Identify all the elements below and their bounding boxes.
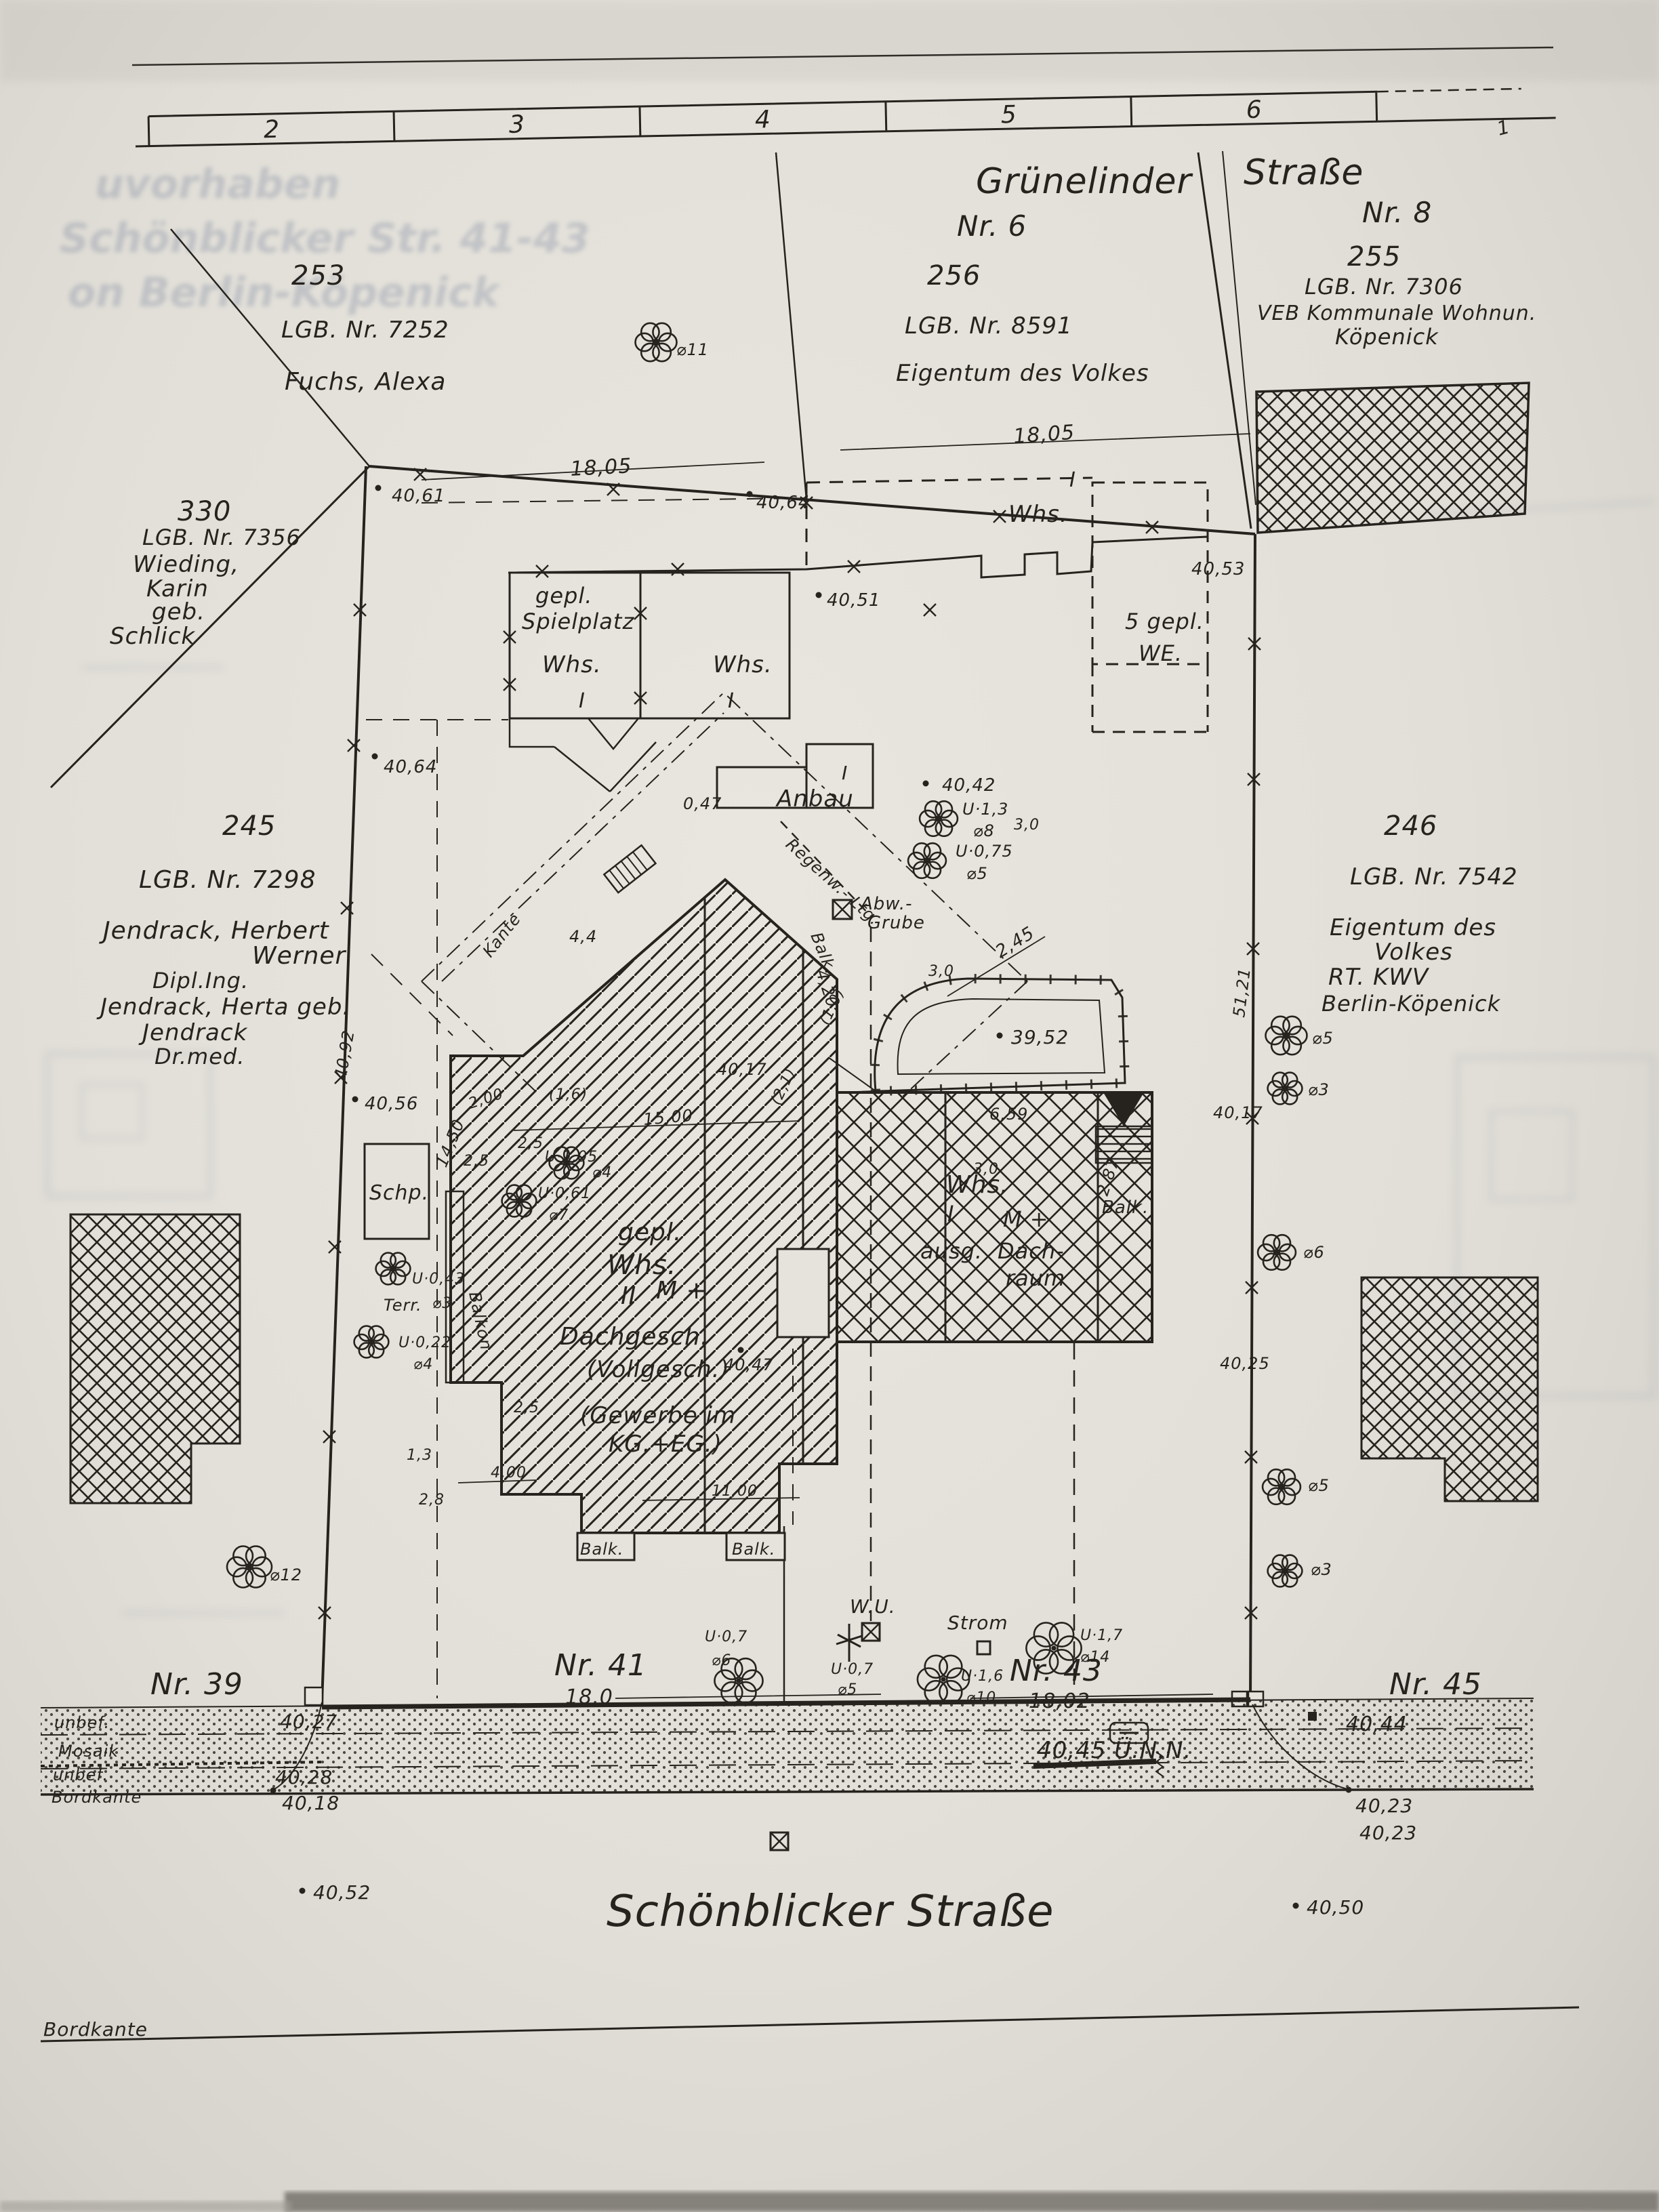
map-label: gepl. — [618, 1218, 682, 1246]
map-label: 5 gepl. — [1125, 609, 1204, 634]
map-label: U·0,7 — [831, 1661, 874, 1678]
boundary-tick — [924, 604, 936, 616]
map-label: I — [579, 689, 586, 713]
survey-point — [1346, 1787, 1352, 1793]
map-label: Mosaik — [58, 1742, 119, 1761]
inner-courtyard — [777, 1249, 829, 1337]
map-label: LGB. Nr. 7298 — [139, 866, 316, 894]
stairs-icon — [604, 845, 655, 893]
boundary-tick — [323, 1431, 335, 1443]
map-label: (Vollgesch.) — [587, 1356, 730, 1383]
map-label: 330 — [178, 496, 231, 527]
map-label: ⌀3 — [1311, 1560, 1332, 1579]
map-label: 40,64 — [384, 757, 437, 777]
site-plan-drawing: uvorhabenSchönblicker Str. 41-43on Berli… — [0, 0, 1659, 2212]
map-label: 255 — [1347, 241, 1401, 272]
map-label: ⌀4 — [413, 1356, 433, 1373]
map-label: Anbau — [775, 785, 854, 813]
map-label: Whs. — [1008, 501, 1068, 528]
map-label: ⌀5 — [1308, 1476, 1330, 1495]
boundary-west — [322, 466, 366, 1702]
map-label: Köpenick — [1335, 324, 1439, 350]
neighbor-building-east — [1361, 1277, 1538, 1501]
map-label: Eigentum des Volkes — [896, 360, 1149, 387]
map-label: KG.+EG.) — [609, 1431, 722, 1458]
map-label: Balk. — [580, 1540, 623, 1559]
ghost-bleed-text: uvorhabenSchönblicker Str. 41-43on Berli… — [60, 161, 590, 316]
map-label: LGB. Nr. 7252 — [281, 316, 449, 344]
sidewalk-band — [41, 1698, 1534, 1795]
map-label: (1,6) — [549, 1086, 588, 1103]
map-label: 40,61 — [392, 486, 445, 506]
map-label: Kante — [479, 909, 525, 961]
map-label: 18,0 — [565, 1685, 613, 1709]
map-label: Nr. 43 — [1010, 1654, 1103, 1688]
map-label: LGB. Nr. 7356 — [142, 525, 301, 550]
map-label: LGB. Nr. 7542 — [1350, 863, 1518, 890]
map-label: I — [842, 762, 848, 784]
survey-point — [923, 781, 929, 787]
map-label: Berlin-Köpenick — [1322, 991, 1501, 1017]
map-label: 4,4 — [569, 927, 597, 946]
map-label: Balk. — [732, 1540, 775, 1559]
map-label: 3,0 — [1014, 817, 1040, 834]
ruler-number: 6 — [1246, 96, 1262, 124]
map-label: 40,23 — [1359, 1822, 1417, 1844]
map-label: 40,17 — [1213, 1103, 1263, 1122]
map-label: U·0,43 — [412, 1271, 465, 1288]
map-label: geb. — [152, 598, 205, 626]
map-label: 40,56 — [365, 1094, 418, 1114]
survey-point — [738, 1347, 744, 1353]
map-label: 1,3 — [407, 1447, 432, 1464]
scale-ruler: 23456 — [135, 88, 1555, 146]
tree-icon — [1263, 1469, 1300, 1504]
map-label: ⌀6 — [1303, 1243, 1325, 1262]
map-label: 40,27 — [280, 1711, 337, 1733]
map-label: 51,21 — [1229, 966, 1254, 1019]
map-label: 40,47 — [724, 1355, 774, 1374]
map-label: 40,92 — [331, 1029, 358, 1081]
map-label: 40,28 — [275, 1766, 333, 1788]
map-label: ⌀12 — [270, 1565, 302, 1584]
map-label: U·0,22 — [398, 1334, 451, 1351]
ruler-number: 2 — [264, 116, 280, 144]
map-label: 11,00 — [712, 1483, 758, 1500]
map-label: U·1,7 — [1080, 1627, 1123, 1644]
map-label: ausg. — [920, 1238, 983, 1264]
map-label: 2,5 — [514, 1399, 539, 1416]
map-label: M + — [1003, 1206, 1049, 1232]
map-label: 18,05 — [570, 454, 633, 481]
pole-icon — [836, 1624, 862, 1662]
survey-point — [747, 491, 753, 497]
map-label: raum — [1006, 1265, 1065, 1291]
ruler-number: 5 — [1000, 101, 1017, 129]
ghost-text: uvorhaben — [95, 161, 340, 208]
tree-icon — [376, 1253, 411, 1285]
tree-icon — [636, 323, 677, 361]
map-label: (Gewerbe im — [580, 1402, 736, 1429]
map-label: Nr. 45 — [1389, 1667, 1482, 1702]
survey-point — [997, 1033, 1003, 1039]
map-label: ⌀5 — [966, 864, 988, 883]
tree-icon — [920, 801, 958, 836]
tree-icon — [1268, 1073, 1303, 1105]
map-label: Nr. 8 — [1362, 196, 1432, 229]
map-label: ⌀11 — [676, 340, 709, 359]
map-label: Schönblicker Straße — [607, 1887, 1054, 1937]
street-edge-gruenelinder-2 — [1223, 151, 1256, 505]
tree-icon — [354, 1326, 389, 1358]
map-label: VEB Kommunale Wohnun. — [1257, 302, 1536, 325]
map-label: U·1,3 — [962, 800, 1008, 819]
tree-icon — [1268, 1555, 1303, 1587]
map-label: 2,45 — [992, 923, 1038, 962]
buildings — [70, 383, 1538, 1560]
map-label: 40,51 — [827, 590, 880, 611]
map-label: unbef. — [53, 1765, 108, 1784]
ghost-text: Schönblicker Str. 41-43 — [60, 215, 590, 262]
map-label: 40,18 — [282, 1792, 340, 1814]
map-label: Straße — [1244, 152, 1364, 193]
arched-structure — [828, 979, 1125, 1092]
planned-5-we — [1092, 483, 1208, 732]
survey-point — [375, 485, 382, 491]
strom-box-icon — [977, 1641, 990, 1654]
map-label: 40,64 — [756, 493, 810, 513]
map-label: 4,00 — [491, 1465, 527, 1481]
map-label: Nr. 6 — [957, 209, 1027, 243]
map-label: 40,53 — [1191, 559, 1245, 579]
map-label: 40,17 — [717, 1060, 767, 1079]
map-label: Bordkante — [52, 1788, 142, 1807]
map-label: ⌀6 — [712, 1652, 731, 1669]
street-edge-gruenelinder — [1198, 152, 1251, 529]
map-label: ⌀10 — [966, 1689, 996, 1706]
tree-icon — [1266, 1017, 1307, 1054]
map-label: Dr.med. — [155, 1044, 245, 1069]
map-label: U·0,61 — [538, 1185, 591, 1202]
map-label: Eigentum des — [1330, 914, 1496, 941]
corner-block-northeast — [1256, 383, 1529, 533]
map-label: Spielplatz — [522, 609, 634, 634]
survey-point — [352, 1097, 359, 1103]
map-label: ⌀5 — [1312, 1029, 1334, 1048]
map-label: Werner — [252, 942, 347, 970]
map-label: Wieding, — [133, 551, 239, 578]
map-label: Grünelinder — [976, 161, 1193, 202]
boundary-tick — [348, 739, 360, 752]
map-label: Dachgesch. — [560, 1323, 709, 1351]
map-label: Jendrack, Herta geb. — [96, 994, 350, 1021]
ghost-text: on Berlin-Köpenick — [68, 269, 501, 316]
map-label: Schlick — [110, 623, 195, 650]
survey-point — [1293, 1903, 1299, 1909]
map-label: gepl. — [535, 583, 592, 609]
map-label: ⌀5 — [838, 1681, 857, 1698]
map-label: 40,42 — [942, 775, 996, 796]
map-label: I — [947, 1201, 954, 1227]
map-label: 3,0 — [928, 963, 954, 980]
map-label: ⌀3 — [1308, 1080, 1330, 1099]
wu-manhole-icon — [862, 1623, 880, 1641]
map-label: Terr. — [384, 1296, 422, 1315]
manhole-icon-street — [771, 1832, 788, 1850]
map-label: Whs. — [542, 651, 602, 678]
map-label: Nr. 41 — [554, 1648, 647, 1683]
map-label: 2,5 — [518, 1135, 544, 1152]
map-label: 253 — [291, 260, 345, 291]
map-label: Nr. 39 — [150, 1667, 243, 1702]
boundary-tick — [994, 510, 1006, 523]
tree-icon — [908, 843, 946, 878]
map-label: 40,52 — [313, 1881, 371, 1904]
map-label: U·0,75 — [956, 842, 1013, 861]
survey-point — [372, 754, 378, 760]
map-label: 2,5 — [464, 1153, 489, 1170]
map-label: 40,45 Ü.N.N. — [1037, 1736, 1191, 1764]
tree-icon — [227, 1546, 272, 1587]
map-label: ⌀3 — [432, 1295, 452, 1312]
map-label: 18,05 — [1012, 421, 1076, 449]
map-label: Jendrack, Herbert — [99, 917, 330, 945]
map-label: Jendrack — [138, 1019, 248, 1046]
map-label: 40,50 — [1307, 1896, 1364, 1919]
boundary-253-256 — [776, 152, 806, 499]
map-label: Strom — [947, 1612, 1008, 1634]
survey-point — [816, 592, 822, 598]
map-label: U·0,7 — [705, 1629, 747, 1645]
map-label: Bordkante — [43, 2018, 148, 2041]
map-label: 256 — [927, 260, 981, 291]
map-label: ⌀8 — [973, 821, 995, 840]
map-label: 40,25 — [1220, 1354, 1270, 1373]
map-label: 246 — [1384, 811, 1437, 842]
tree-icon — [1258, 1235, 1296, 1270]
map-label: I — [1069, 468, 1076, 492]
map-label: Volkes — [1374, 939, 1453, 966]
map-label: 40,44 — [1346, 1713, 1408, 1736]
map-label: RT. KWV — [1328, 964, 1430, 991]
curb-line-south — [41, 2007, 1579, 2041]
map-label: unbef. — [54, 1713, 110, 1732]
map-label: Schp. — [369, 1181, 429, 1205]
boundary-north — [369, 466, 1255, 534]
map-label: 40,23 — [1355, 1795, 1413, 1817]
map-label: 3,0 — [973, 1161, 999, 1178]
map-label: Fuchs, Alexa — [285, 368, 446, 396]
ruler-number: 3 — [509, 110, 525, 138]
map-label: 6,59 — [989, 1105, 1028, 1124]
map-label: M + — [656, 1277, 708, 1305]
map-label: WE. — [1139, 640, 1183, 666]
map-label: 18,02 — [1029, 1689, 1090, 1713]
map-label: ⌀4 — [592, 1164, 612, 1181]
map-label: ⌀7 — [549, 1207, 569, 1224]
map-label: 2,8 — [419, 1492, 445, 1509]
map-label: Balk. — [1102, 1197, 1149, 1218]
map-label: U·1,05 — [545, 1149, 598, 1166]
map-label: 39,52 — [1011, 1026, 1069, 1048]
survey-point — [300, 1888, 306, 1894]
neighbor-building-west — [70, 1214, 240, 1503]
ruler-number: 4 — [755, 106, 771, 134]
gate-square-west — [305, 1687, 323, 1705]
scanned-site-plan: uvorhabenSchönblicker Str. 41-43on Berli… — [0, 0, 1659, 2212]
map-label: Dipl.Ing. — [152, 968, 249, 994]
map-label: W.U. — [850, 1595, 896, 1618]
map-label: Dach- — [998, 1238, 1065, 1264]
map-label: 0,47 — [683, 794, 722, 813]
map-label: I — [728, 689, 735, 713]
map-label: LGB. Nr. 8591 — [905, 312, 1073, 340]
map-label: Whs. — [713, 651, 773, 678]
map-label: 245 — [222, 811, 276, 842]
map-label: U·1,6 — [961, 1668, 1004, 1685]
map-label: II — [621, 1282, 636, 1310]
map-label: LGB. Nr. 7306 — [1305, 274, 1463, 300]
